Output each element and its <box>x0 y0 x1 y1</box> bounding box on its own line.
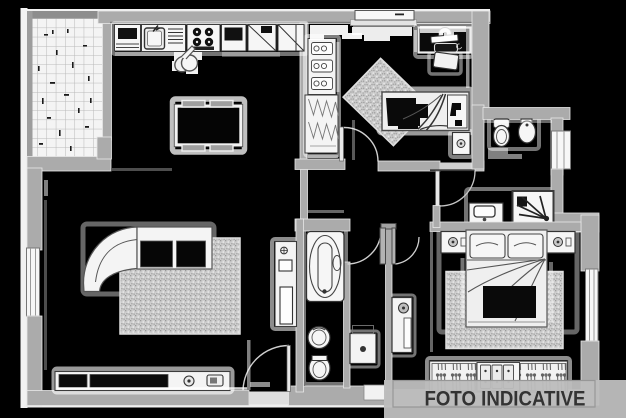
svg-text:FOTO INDICATIVE: FOTO INDICATIVE <box>425 388 586 411</box>
